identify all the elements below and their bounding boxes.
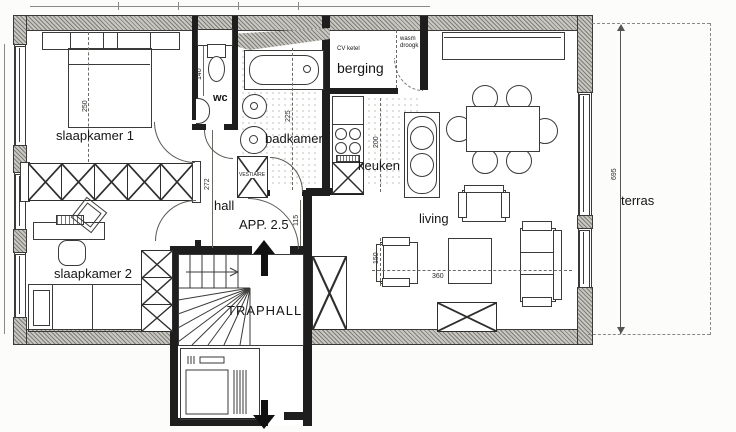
label-wc: wc [213,92,228,104]
wardrobe-cell [127,163,162,201]
dim-line-360 [372,270,572,271]
dim-arrow-top [617,24,625,31]
armchair-north-back [464,185,504,193]
roof-tick [238,2,239,10]
dim-line-695 [620,26,621,334]
dim-225: 225 [285,110,292,122]
wardrobe-end-cap [192,161,201,203]
dim-line-140 [203,46,204,96]
headboard-divider [117,32,118,48]
label-traphall: TRAPHALL [227,303,302,318]
terras-edge-east [710,23,711,335]
wardrobe2-cell [141,304,173,332]
dim-360: 360 [432,273,444,280]
exit-arrow-down [253,400,275,430]
label-slaapkamer2: slaapkamer 2 [54,266,132,281]
wall-south-right [306,330,592,344]
window-west-1 [15,46,26,146]
basin-2-drain [249,135,258,144]
wardrobe-cell [160,163,194,201]
tilted-chair-inner [76,202,101,227]
wall-west-pier [14,318,26,344]
label-keuken: keuken [358,158,400,173]
sofa-back [553,230,562,300]
wardrobe-cell [61,163,96,201]
dim-695: 695 [611,168,618,180]
living-cabinet-tall [312,256,347,330]
dim-272: 272 [204,178,211,190]
armchair-north-arm [501,192,510,218]
sill-line [4,44,5,334]
wall-south-left [16,330,178,344]
double-bed [68,48,152,128]
label-hall: hall [214,198,234,213]
pillow [33,290,50,326]
label-slaapkamer1: slaapkamer 1 [56,128,134,143]
wardrobe2-cell [141,250,173,279]
label-app: APP. 2.5 [239,217,289,232]
burner [349,142,361,154]
lift [180,348,260,420]
living-cabinet-low [437,302,497,332]
armchair-north-seat [462,190,506,222]
coffee-table [448,238,492,284]
entrance-arrow-up [253,240,275,276]
sofa-arm [522,221,552,231]
wall-north [16,16,592,30]
label-badkamer: badkamer [265,131,323,146]
wasm-droogk-label: wasm droogk [400,36,424,50]
window-west-3-glass [19,256,20,314]
dim-200: 200 [373,136,380,148]
kitchen-counter [332,96,364,126]
wardrobe-cell [94,163,129,201]
window-west-1-glass [19,48,20,142]
sofa-cushion-line [521,274,553,275]
sofa-seat [520,228,556,302]
wall-west-pier [14,230,26,252]
window-east-glass [583,96,584,212]
sofa-cushion-line [521,252,553,253]
wall-badkamer-keuken [322,16,330,196]
floor-plan: 250 140 225 VESTIAIRE CV ketel wasm droo… [0,0,736,432]
dim-arrow-bottom [617,327,625,334]
terras-edge-south [588,334,710,335]
roof-tick [118,2,119,10]
window-east [579,94,590,216]
headboard-divider [150,32,151,48]
dim-line-200 [380,98,381,192]
armchair-north-arm [458,192,467,218]
sink-bowl [410,153,434,177]
dim-115: 115 [293,215,300,226]
basin-1-drain [250,102,258,110]
worktop-edge [444,37,561,38]
dim-140: 140 [196,68,203,80]
dim-250: 250 [82,100,89,112]
dim-line-115 [300,200,301,246]
stove-controls [336,155,360,162]
window-west-3 [15,254,26,318]
stairs [178,254,304,346]
burner [349,128,361,140]
sofa-arm [522,297,552,307]
bed-line [92,284,93,330]
roof-tick [298,2,299,10]
bathtub-drain [303,65,311,73]
wall-hall-south-a [170,246,252,254]
label-berging: berging [337,60,384,76]
desk-chair [58,240,86,266]
bed-blanket-line [68,64,150,65]
wall-east-pier-bottom [578,288,592,344]
armchair-west-arm [382,278,410,287]
roof-line [30,6,430,7]
headboard-divider [70,32,71,48]
dim-line-150 [380,238,381,286]
wall-berging-south [330,88,398,94]
wall-traphall-foot [284,412,312,420]
label-living: living [419,211,449,226]
bed-line [52,284,53,330]
vestiaire-label: VESTIAIRE [238,172,266,178]
toilet-bowl [208,56,225,82]
armchair-west-arm [382,237,410,246]
cv-ketel-label: CV ketel [337,46,360,52]
dining-table [466,106,540,152]
wardrobe2-cell [141,277,173,306]
wall-east-pier-mid [578,216,592,228]
terrace-door-glass [579,230,590,288]
burner [335,128,347,140]
roof-tick [178,2,179,10]
sink-bowl [410,126,434,150]
label-terras: terras [621,193,654,208]
wall-east-pier-top [578,16,592,92]
terrace-door-glass-line [583,232,584,284]
wardrobe-cell [28,163,63,201]
wall-traphall-east [303,255,312,426]
headboard-divider [103,32,104,48]
wall-west-pier [14,16,26,44]
burner [335,142,347,154]
dim-150: 150 [373,252,380,264]
terras-edge-north [592,23,710,24]
